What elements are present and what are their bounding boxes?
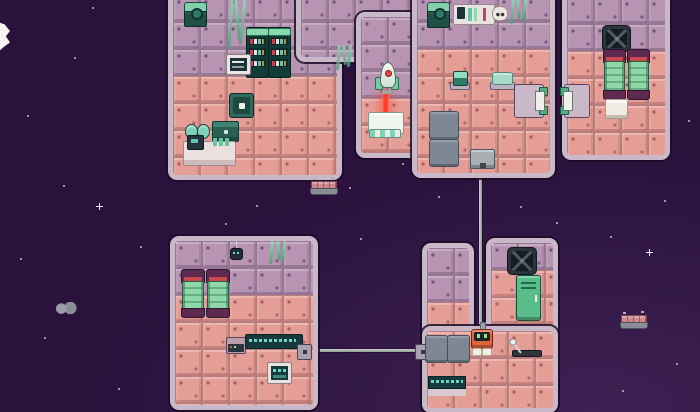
deck-plate — [429, 139, 459, 167]
tool-ledge[interactable] — [245, 334, 303, 349]
register — [187, 135, 204, 150]
floor-terminal[interactable] — [267, 362, 292, 384]
dock-plate — [535, 91, 545, 111]
rocket-window — [385, 70, 392, 77]
message-console[interactable] — [426, 374, 468, 398]
deck-plate — [447, 335, 470, 363]
shelf-cap — [268, 28, 291, 36]
vine-strand — [281, 241, 286, 262]
bed-mattress — [628, 61, 649, 92]
sign-screen-glyphs — [230, 58, 247, 71]
bed-mattress — [604, 61, 625, 92]
white-crate[interactable] — [605, 99, 628, 119]
locker-slot — [521, 287, 536, 289]
robot-foot — [482, 348, 492, 356]
shelf-row — [249, 48, 266, 56]
sleep-pod[interactable] — [206, 269, 230, 318]
vent-fan — [602, 25, 631, 52]
wreck-base — [620, 322, 648, 329]
bed-mattress — [207, 281, 229, 310]
pad-stripes — [369, 129, 401, 138]
shelf-row — [271, 48, 288, 56]
cable-socket — [297, 344, 312, 360]
bed-footboard — [206, 308, 230, 318]
wall-vines — [226, 0, 247, 54]
ledge-glyphs — [249, 339, 296, 342]
tray-top — [492, 72, 513, 85]
shelf-row — [249, 37, 266, 45]
vent-fan — [507, 247, 537, 275]
terminal-screen-glyphs — [271, 366, 288, 380]
vine-strand — [270, 241, 275, 264]
bar-slot — [457, 7, 465, 19]
wreck-base — [310, 188, 338, 195]
floating-wreck — [310, 178, 338, 195]
bar-counter[interactable] — [453, 4, 495, 25]
sleep-pod[interactable] — [181, 269, 205, 318]
storage-crate[interactable] — [184, 2, 207, 27]
canister-row — [213, 138, 231, 146]
fan-housing — [606, 29, 627, 48]
shelf-row — [271, 59, 288, 67]
game-viewport[interactable] — [0, 0, 700, 412]
radio-panel — [228, 344, 244, 352]
sleep-pod[interactable] — [627, 49, 650, 100]
wall-vines — [334, 44, 353, 72]
rocket-base — [382, 90, 392, 94]
fan-housing — [511, 251, 533, 271]
wall-lever[interactable] — [512, 339, 542, 358]
vine-strand — [510, 0, 515, 24]
vine-strand — [342, 45, 347, 65]
vine-strand — [336, 45, 341, 70]
vine-strand — [228, 0, 234, 49]
bed-footboard — [627, 90, 650, 100]
docking-port[interactable] — [564, 84, 590, 118]
landing-pad[interactable] — [366, 112, 406, 140]
shelf-row — [271, 37, 288, 45]
rocket-body — [380, 62, 396, 88]
bottle-row — [468, 8, 491, 21]
bed-footboard — [181, 308, 205, 318]
shelf-row — [249, 59, 266, 67]
locker[interactable] — [516, 275, 541, 321]
tether-anchor — [470, 149, 495, 169]
sleep-pod[interactable] — [603, 49, 626, 100]
docking-port[interactable] — [514, 84, 544, 118]
floor-button[interactable] — [229, 93, 254, 118]
wall-monitor[interactable] — [226, 54, 251, 75]
tray-table[interactable] — [490, 71, 515, 90]
crate-ring — [191, 8, 203, 20]
floating-wreck — [620, 312, 648, 329]
vine-strand — [276, 241, 281, 260]
player-robot[interactable] — [469, 324, 495, 358]
robot-eye — [484, 334, 487, 338]
hanging-lamp — [229, 241, 242, 262]
sample-pedestal[interactable] — [450, 71, 470, 90]
robot-face — [474, 332, 490, 341]
edge-star — [0, 22, 10, 52]
robot-foot — [472, 348, 482, 356]
kitchen-counter[interactable] — [183, 141, 236, 166]
dock-plate — [563, 91, 573, 111]
console-screen-glyphs — [428, 376, 466, 389]
vine-strand — [347, 45, 352, 68]
deck-plate — [425, 335, 448, 363]
lamp-body — [230, 248, 243, 260]
asteroid-pair — [54, 302, 78, 314]
robot-eye — [477, 334, 480, 338]
supply-shelf[interactable] — [268, 27, 291, 78]
objects-layer — [0, 0, 700, 412]
storage-crate[interactable] — [427, 2, 450, 28]
vine-strand — [522, 0, 527, 22]
deck-plate — [429, 111, 459, 140]
locker-slot — [521, 282, 536, 284]
robot-body — [471, 329, 493, 349]
skull-curio[interactable] — [492, 6, 508, 21]
bed-mattress — [182, 281, 204, 310]
crate-ring — [434, 8, 446, 20]
wall-vines — [507, 0, 529, 26]
vine-strand — [516, 0, 521, 19]
locker-handle — [535, 295, 537, 302]
pedestal-cube — [453, 71, 468, 86]
shelf-cap — [246, 28, 269, 36]
console-base — [428, 389, 466, 396]
radio-box[interactable] — [226, 337, 246, 354]
lever-base — [512, 350, 542, 357]
beacon-rocket[interactable] — [375, 62, 399, 96]
wall-vines — [267, 240, 288, 266]
